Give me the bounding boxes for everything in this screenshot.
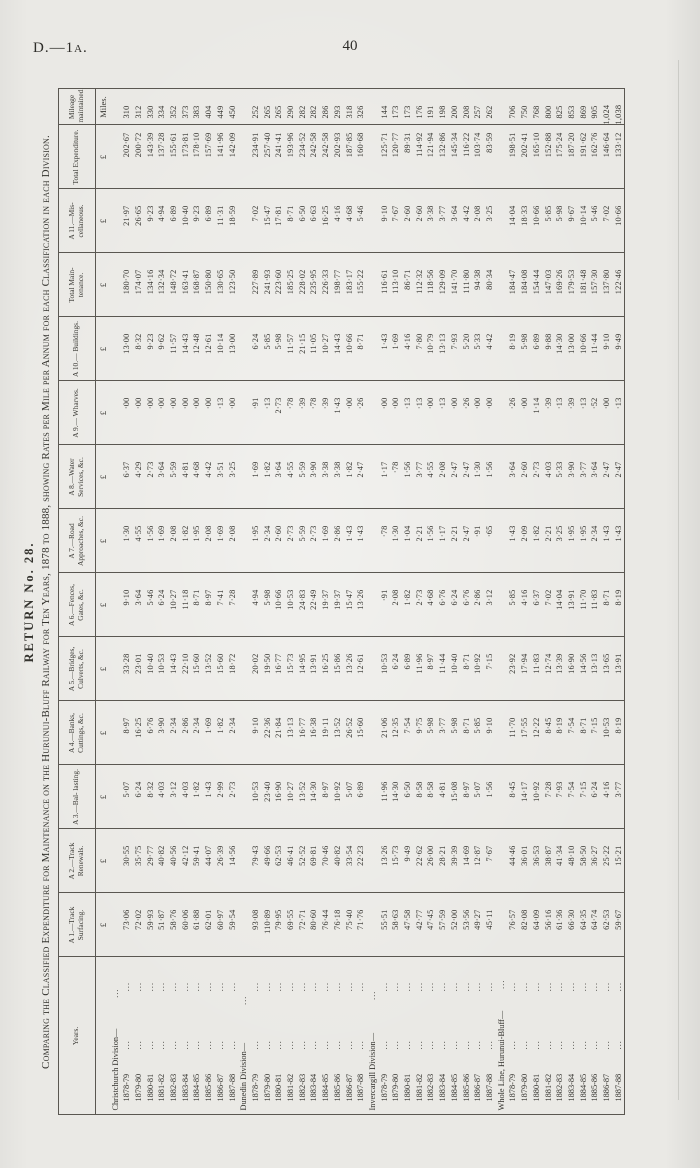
year-data-row: 1881-82......56·1638·877·288·4512·747·02… [543, 89, 555, 1115]
rotated-content: RETURN No. 28. Comparing the Classified … [22, 86, 662, 1118]
value-cell: 2·86 [472, 573, 484, 637]
value-cell: 4·68 [191, 445, 203, 509]
value-cell: 75·40 [344, 893, 356, 957]
value-cell: 72·71 [297, 893, 309, 957]
year-label: 1880-81...... [402, 957, 414, 1115]
value-cell: 2·08 [390, 573, 402, 637]
year-label: 1882-83...... [425, 957, 437, 1115]
mileage-cell: 155·61 [168, 125, 180, 189]
year-label: 1883-84...... [437, 957, 449, 1115]
value-cell: 2·86 [332, 509, 344, 573]
empty-cell [367, 637, 379, 701]
value-cell: 7·02 [601, 189, 613, 253]
division-heading-row: Invercargill Division—... [367, 89, 379, 1115]
value-cell: 15·21 [613, 829, 625, 893]
value-cell: 4·94 [250, 573, 262, 637]
value-cell: 13·26 [379, 829, 391, 893]
value-cell: 1·14 [531, 381, 543, 445]
value-cell: 3·90 [156, 701, 168, 765]
value-cell: 265 [262, 89, 274, 125]
value-cell: 5·85 [543, 189, 555, 253]
value-cell: ·39 [297, 381, 309, 445]
value-cell: 184·47 [507, 253, 519, 317]
year-label: 1887-88...... [484, 957, 496, 1115]
value-cell: 4·42 [484, 317, 496, 381]
value-cell: 4·94 [156, 189, 168, 253]
value-cell: 72·02 [133, 893, 145, 957]
value-cell: 4·16 [402, 317, 414, 381]
year-data-row: 1881-82......51·8740·824·033·9010·536·24… [156, 89, 168, 1115]
value-cell: 1,024 [601, 89, 613, 125]
value-cell: 191 [425, 89, 437, 125]
value-cell: 26·65 [133, 189, 145, 253]
value-cell: 8·19 [613, 573, 625, 637]
column-header: A 10.— Buildings. [58, 317, 95, 381]
column-unit: £ [95, 765, 110, 829]
value-cell: 1·69 [215, 509, 227, 573]
value-cell: ·00 [121, 381, 133, 445]
value-cell: 16·38 [308, 701, 320, 765]
value-cell: 15·60 [355, 701, 367, 765]
division-heading: Whole Line, Hurunui-Bluff—... [496, 957, 508, 1115]
value-cell: 6·50 [402, 765, 414, 829]
value-cell: 800 [543, 89, 555, 125]
value-cell: 3·64 [589, 445, 601, 509]
value-cell: 150·80 [203, 253, 215, 317]
value-cell: 10·27 [285, 765, 297, 829]
column-header: A 5.—Bridges, Culverts, &c. [58, 637, 95, 701]
column-header: Mileage maintained. [58, 89, 95, 125]
empty-cell [238, 765, 250, 829]
value-cell: 46·41 [285, 829, 297, 893]
value-cell: ·00 [425, 381, 437, 445]
value-cell: 2·34 [168, 701, 180, 765]
year-label: 1884-85...... [191, 957, 203, 1115]
value-cell: 13·52 [203, 637, 215, 701]
value-cell: 6·24 [390, 637, 402, 701]
division-heading-row: Christchurch Division—... [110, 89, 122, 1115]
value-cell: 3·64 [133, 573, 145, 637]
value-cell: 1·69 [156, 509, 168, 573]
value-cell: 59·67 [613, 893, 625, 957]
value-cell: 2·34 [262, 509, 274, 573]
mileage-cell: 143·39 [145, 125, 157, 189]
column-header: A 7.—Road Approaches, &c. [58, 509, 95, 573]
value-cell: 2·21 [449, 509, 461, 573]
mileage-cell: 242·58 [308, 125, 320, 189]
year-label: 1879-80...... [390, 957, 402, 1115]
value-cell: 8·58 [414, 765, 426, 829]
value-cell: 825 [554, 89, 566, 125]
column-unit: £ [95, 829, 110, 893]
value-cell: 9·75 [414, 701, 426, 765]
value-cell: 7·80 [414, 317, 426, 381]
year-data-row: 1885-86......62·0144·071·431·6913·528·97… [203, 89, 215, 1115]
value-cell: 2·09 [519, 509, 531, 573]
value-cell: 22·49 [308, 573, 320, 637]
value-cell: ·65 [484, 509, 496, 573]
value-cell: 10·66 [578, 317, 590, 381]
value-cell: 5·85 [507, 573, 519, 637]
value-cell: 5·98 [519, 317, 531, 381]
empty-cell [110, 317, 122, 381]
year-data-row: 1887-88......45·117·671·569·107·153·12·6… [484, 89, 496, 1115]
value-cell: 7·28 [227, 573, 239, 637]
value-cell: 11·96 [414, 637, 426, 701]
year-label: 1880-81...... [531, 957, 543, 1115]
value-cell: 3·90 [566, 445, 578, 509]
value-cell: 110·89 [262, 893, 274, 957]
value-cell: 334 [156, 89, 168, 125]
year-data-row: 1883-84......57·5928·214·813·7711·446·76… [437, 89, 449, 1115]
empty-cell [110, 253, 122, 317]
value-cell: 7·02 [250, 189, 262, 253]
year-data-row: 1878-79......73·0630·555·078·9733·289·10… [121, 89, 133, 1115]
value-cell: 51·87 [156, 893, 168, 957]
value-cell: 58·63 [390, 893, 402, 957]
year-label: 1884-85...... [449, 957, 461, 1115]
year-data-row: 1884-85......61·8859·411·822·3415·608·71… [191, 89, 203, 1115]
value-cell: 180·70 [121, 253, 133, 317]
empty-cell [110, 637, 122, 701]
value-cell: 17·94 [519, 637, 531, 701]
empty-cell [238, 317, 250, 381]
mileage-cell: 202·93 [332, 125, 344, 189]
empty-cell [238, 89, 250, 125]
value-cell: ·13 [613, 381, 625, 445]
value-cell: 5·46 [355, 189, 367, 253]
mileage-cell: 160·68 [355, 125, 367, 189]
value-cell: ·78 [390, 445, 402, 509]
year-label: 1885-86...... [332, 957, 344, 1115]
empty-cell [238, 381, 250, 445]
value-cell: ·39 [566, 381, 578, 445]
year-data-row: 1885-86......64·7436·276·247·1513·1311·8… [589, 89, 601, 1115]
value-cell: ·00 [145, 381, 157, 445]
year-label: 1880-81...... [145, 957, 157, 1115]
value-cell: 1·56 [145, 509, 157, 573]
mileage-cell: 173·81 [180, 125, 192, 189]
value-cell: 181·48 [578, 253, 590, 317]
year-label: 1878-79...... [121, 957, 133, 1115]
year-label: 1885-86...... [203, 957, 215, 1115]
value-cell: 1·56 [484, 765, 496, 829]
value-cell: 3·64 [507, 445, 519, 509]
value-cell: 8·32 [145, 765, 157, 829]
value-cell: 11·57 [285, 317, 297, 381]
value-cell: ·13 [578, 381, 590, 445]
column-unit: £ [95, 125, 110, 189]
return-title: RETURN No. 28. [22, 86, 37, 1118]
column-header: A 9.— Wharves. [58, 381, 95, 445]
value-cell: 173 [402, 89, 414, 125]
year-data-row: 1882-83......72·7152·5213·5216·7714·9524… [297, 89, 309, 1115]
value-cell: 71·76 [355, 893, 367, 957]
empty-cell [367, 893, 379, 957]
value-cell: 179·53 [566, 253, 578, 317]
empty-cell [367, 509, 379, 573]
value-cell: 5·07 [472, 765, 484, 829]
value-cell: 10·40 [145, 637, 157, 701]
value-cell: 59·41 [191, 829, 203, 893]
value-cell: 7·28 [543, 765, 555, 829]
mileage-cell: 132·86 [437, 125, 449, 189]
value-cell: 208 [461, 89, 473, 125]
value-cell: 6·89 [531, 317, 543, 381]
year-label: 1884-85...... [578, 957, 590, 1115]
value-cell: ·52 [589, 381, 601, 445]
value-cell: 2·47 [355, 445, 367, 509]
value-cell: 6·63 [308, 189, 320, 253]
value-cell: 9·10 [601, 317, 613, 381]
mileage-cell: 191·62 [578, 125, 590, 189]
column-unit: £ [95, 317, 110, 381]
year-label: 1886-87...... [215, 957, 227, 1115]
value-cell: 48·10 [566, 829, 578, 893]
value-cell: 15·73 [285, 637, 297, 701]
value-cell: ·13 [437, 381, 449, 445]
year-label: 1881-82...... [285, 957, 297, 1115]
value-cell: 8·58 [425, 765, 437, 829]
value-cell: 4·29 [133, 445, 145, 509]
value-cell: 9·10 [121, 573, 133, 637]
value-cell: 1·43 [355, 509, 367, 573]
year-label: 1887-88...... [613, 957, 625, 1115]
value-cell: 76·18 [332, 893, 344, 957]
value-cell: ·91 [250, 381, 262, 445]
value-cell: 1·69 [250, 445, 262, 509]
empty-cell [110, 381, 122, 445]
empty-cell [367, 765, 379, 829]
value-cell: 1·43 [601, 509, 613, 573]
value-cell: 52·00 [449, 893, 461, 957]
year-data-row: 1887-88......71·7622·236·8915·6012·6113·… [355, 89, 367, 1115]
value-cell: 5·98 [262, 573, 274, 637]
mileage-cell: 146·64 [601, 125, 613, 189]
value-cell: ·91 [472, 509, 484, 573]
value-cell: 2·21 [543, 509, 555, 573]
value-cell: 2·73 [145, 445, 157, 509]
value-cell: 9·10 [250, 701, 262, 765]
value-cell: 14·56 [578, 637, 590, 701]
value-cell: 8·71 [285, 189, 297, 253]
value-cell: 14·43 [332, 317, 344, 381]
value-cell: 60·97 [215, 893, 227, 957]
value-cell: 2·47 [461, 509, 473, 573]
column-header: Total Expenditure. [58, 125, 95, 189]
empty-cell [110, 509, 122, 573]
column-header: A 3.—Bal- lasting. [58, 765, 95, 829]
value-cell: 13·52 [297, 765, 309, 829]
value-cell: 22·23 [355, 829, 367, 893]
empty-cell [367, 89, 379, 125]
value-cell: 40·82 [156, 829, 168, 893]
value-cell: 14·30 [308, 765, 320, 829]
value-cell: 11·31 [215, 189, 227, 253]
value-cell: 1·04 [402, 509, 414, 573]
value-cell: 383 [191, 89, 203, 125]
value-cell: 44·07 [203, 829, 215, 893]
value-cell: 19·50 [262, 637, 274, 701]
value-cell: 5·59 [297, 445, 309, 509]
empty-cell [496, 637, 508, 701]
value-cell: 24·83 [297, 573, 309, 637]
year-label: 1884-85...... [320, 957, 332, 1115]
value-cell: 59·54 [227, 893, 239, 957]
value-cell: 11·83 [589, 573, 601, 637]
return-subtitle: Comparing the Classified Expenditure for… [40, 107, 53, 1097]
year-label: 1887-88...... [227, 957, 239, 1115]
empty-cell [496, 829, 508, 893]
value-cell: 1,038 [613, 89, 625, 125]
value-cell: 13·13 [285, 701, 297, 765]
value-cell: 293 [332, 89, 344, 125]
value-cell: 112·32 [414, 253, 426, 317]
value-cell: 1·17 [437, 509, 449, 573]
year-data-row: 1882-83......47·4526·008·585·988·974·681… [425, 89, 437, 1115]
empty-cell [496, 701, 508, 765]
value-cell: 3·77 [414, 445, 426, 509]
value-cell: 111·80 [461, 253, 473, 317]
empty-cell [367, 829, 379, 893]
value-cell: 55·51 [379, 893, 391, 957]
value-cell: 7·15 [589, 701, 601, 765]
value-cell: 70·46 [320, 829, 332, 893]
value-cell: 13·39 [554, 637, 566, 701]
value-cell: 241·93 [262, 253, 274, 317]
empty-cell [367, 125, 379, 189]
value-cell: 53·56 [461, 893, 473, 957]
value-cell: 9·67 [566, 189, 578, 253]
mileage-cell: 133·12 [613, 125, 625, 189]
value-cell: 1·56 [402, 445, 414, 509]
value-cell: 62·01 [203, 893, 215, 957]
year-label: 1878-79...... [379, 957, 391, 1115]
column-unit: £ [95, 701, 110, 765]
mileage-cell: 202·67 [121, 125, 133, 189]
value-cell: ·78 [285, 381, 297, 445]
value-cell: 9·23 [145, 189, 157, 253]
value-cell: 23·92 [507, 637, 519, 701]
empty-cell [110, 125, 122, 189]
value-cell: ·00 [227, 381, 239, 445]
value-cell: 155·22 [355, 253, 367, 317]
value-cell: 86·71 [402, 253, 414, 317]
mileage-cell: 121·94 [425, 125, 437, 189]
value-cell: 33·54 [344, 829, 356, 893]
value-cell: 265 [273, 89, 285, 125]
value-cell: 7·93 [449, 317, 461, 381]
year-label: 1878-79...... [507, 957, 519, 1115]
value-cell: 6·24 [449, 573, 461, 637]
value-cell: 7·93 [554, 765, 566, 829]
value-cell: 6·76 [461, 573, 473, 637]
value-cell: 58·76 [168, 893, 180, 957]
value-cell: 15·73 [390, 829, 402, 893]
value-cell: 2·86 [180, 701, 192, 765]
year-data-row: 1887-88......59·6715·213·778·1913·918·19… [613, 89, 625, 1115]
mileage-cell: 116·22 [461, 125, 473, 189]
empty-cell [367, 445, 379, 509]
value-cell: 2·08 [168, 509, 180, 573]
empty-cell [367, 253, 379, 317]
value-cell: 2·60 [402, 189, 414, 253]
value-cell: 2·47 [613, 445, 625, 509]
value-cell: 3·77 [437, 701, 449, 765]
value-cell: 6·76 [437, 573, 449, 637]
mileage-cell: 234·91 [250, 125, 262, 189]
value-cell: 134·16 [145, 253, 157, 317]
value-cell: 39·39 [449, 829, 461, 893]
value-cell: 176 [414, 89, 426, 125]
value-cell: 19·11 [320, 701, 332, 765]
value-cell: 1·69 [320, 509, 332, 573]
value-cell: 10·40 [449, 637, 461, 701]
value-cell: 1·82 [262, 445, 274, 509]
value-cell: 228·02 [297, 253, 309, 317]
value-cell: 1·69 [390, 317, 402, 381]
empty-cell [110, 189, 122, 253]
empty-cell [496, 125, 508, 189]
value-cell: 7·15 [578, 765, 590, 829]
value-cell: ·00 [449, 381, 461, 445]
year-label: 1885-86...... [589, 957, 601, 1115]
value-cell: ·00 [203, 381, 215, 445]
value-cell: 26·52 [344, 701, 356, 765]
value-cell: 57·59 [437, 893, 449, 957]
value-cell: 11·96 [379, 765, 391, 829]
empty-cell [367, 573, 379, 637]
value-cell: 118·56 [425, 253, 437, 317]
value-cell: 14·04 [554, 573, 566, 637]
value-cell: 2·08 [227, 509, 239, 573]
year-label: 1879-80...... [519, 957, 531, 1115]
empty-cell [238, 573, 250, 637]
value-cell: 17·81 [273, 189, 285, 253]
value-cell: 1·82 [191, 765, 203, 829]
column-header: A 1.—Track Surfacing. [58, 893, 95, 957]
value-cell: 8·71 [601, 573, 613, 637]
value-cell: 5·07 [121, 765, 133, 829]
value-cell: 1·82 [344, 445, 356, 509]
value-cell: 14·43 [180, 317, 192, 381]
value-cell: 3·38 [332, 445, 344, 509]
value-cell: 227·89 [250, 253, 262, 317]
value-cell: 3·25 [227, 445, 239, 509]
value-cell: 326 [355, 89, 367, 125]
year-label: 1879-80...... [262, 957, 274, 1115]
empty-cell [496, 573, 508, 637]
year-label: 1880-81...... [273, 957, 285, 1115]
value-cell: 147·03 [543, 253, 555, 317]
value-cell: 13·26 [355, 573, 367, 637]
value-cell: 1·56 [425, 509, 437, 573]
value-cell: 1·43 [379, 317, 391, 381]
value-cell: 13·00 [227, 317, 239, 381]
value-cell: 113·10 [390, 253, 402, 317]
value-cell: 168·87 [191, 253, 203, 317]
value-cell: 21·15 [297, 317, 309, 381]
mileage-cell: 187·85 [344, 125, 356, 189]
value-cell: 3·77 [437, 189, 449, 253]
value-cell: 12·48 [191, 317, 203, 381]
value-cell: 163·41 [180, 253, 192, 317]
value-cell: 3·64 [449, 189, 461, 253]
value-cell: 2·08 [437, 445, 449, 509]
column-header: Years. [58, 957, 95, 1115]
value-cell: ·13 [414, 381, 426, 445]
value-cell: 49·27 [472, 893, 484, 957]
